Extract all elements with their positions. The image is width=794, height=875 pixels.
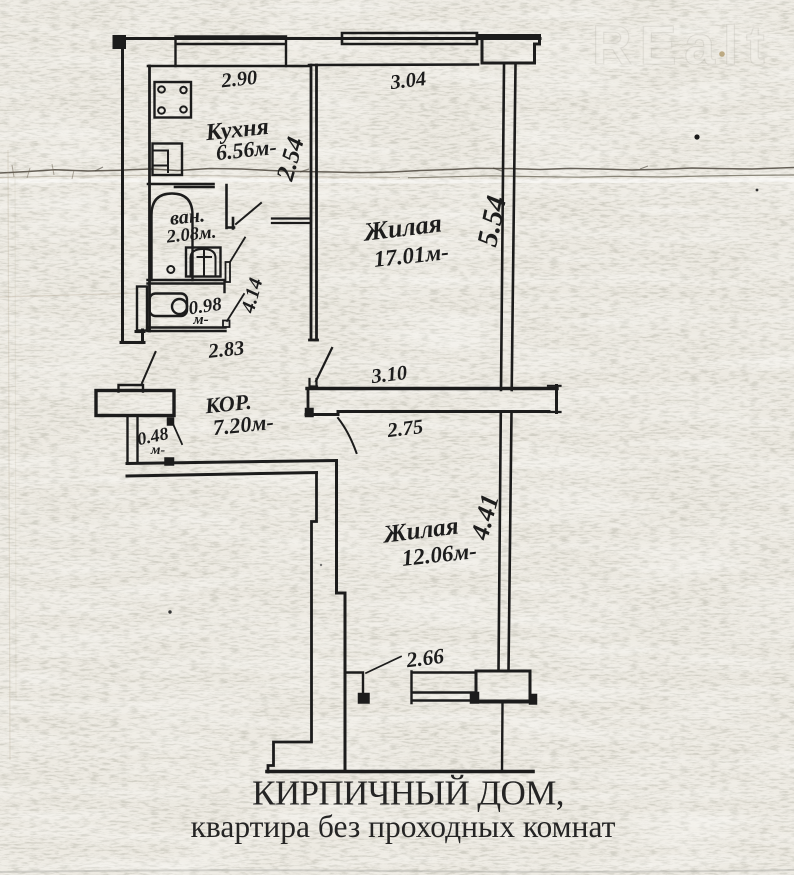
svg-text:квартира без проходных комнат: квартира без проходных комнат: [191, 809, 616, 844]
svg-text:м-: м-: [150, 443, 166, 458]
svg-text:м-: м-: [192, 312, 208, 328]
svg-text:КИРПИЧНЫЙ ДОМ,: КИРПИЧНЫЙ ДОМ,: [252, 774, 564, 813]
svg-text:3.10: 3.10: [369, 362, 408, 388]
svg-text:REalt: REalt: [592, 14, 773, 76]
svg-text:2.75: 2.75: [385, 416, 424, 442]
svg-text:2.90: 2.90: [219, 67, 258, 93]
svg-text:2.83: 2.83: [206, 337, 245, 363]
svg-text:2.66: 2.66: [404, 644, 446, 673]
svg-text:3.04: 3.04: [388, 68, 427, 94]
